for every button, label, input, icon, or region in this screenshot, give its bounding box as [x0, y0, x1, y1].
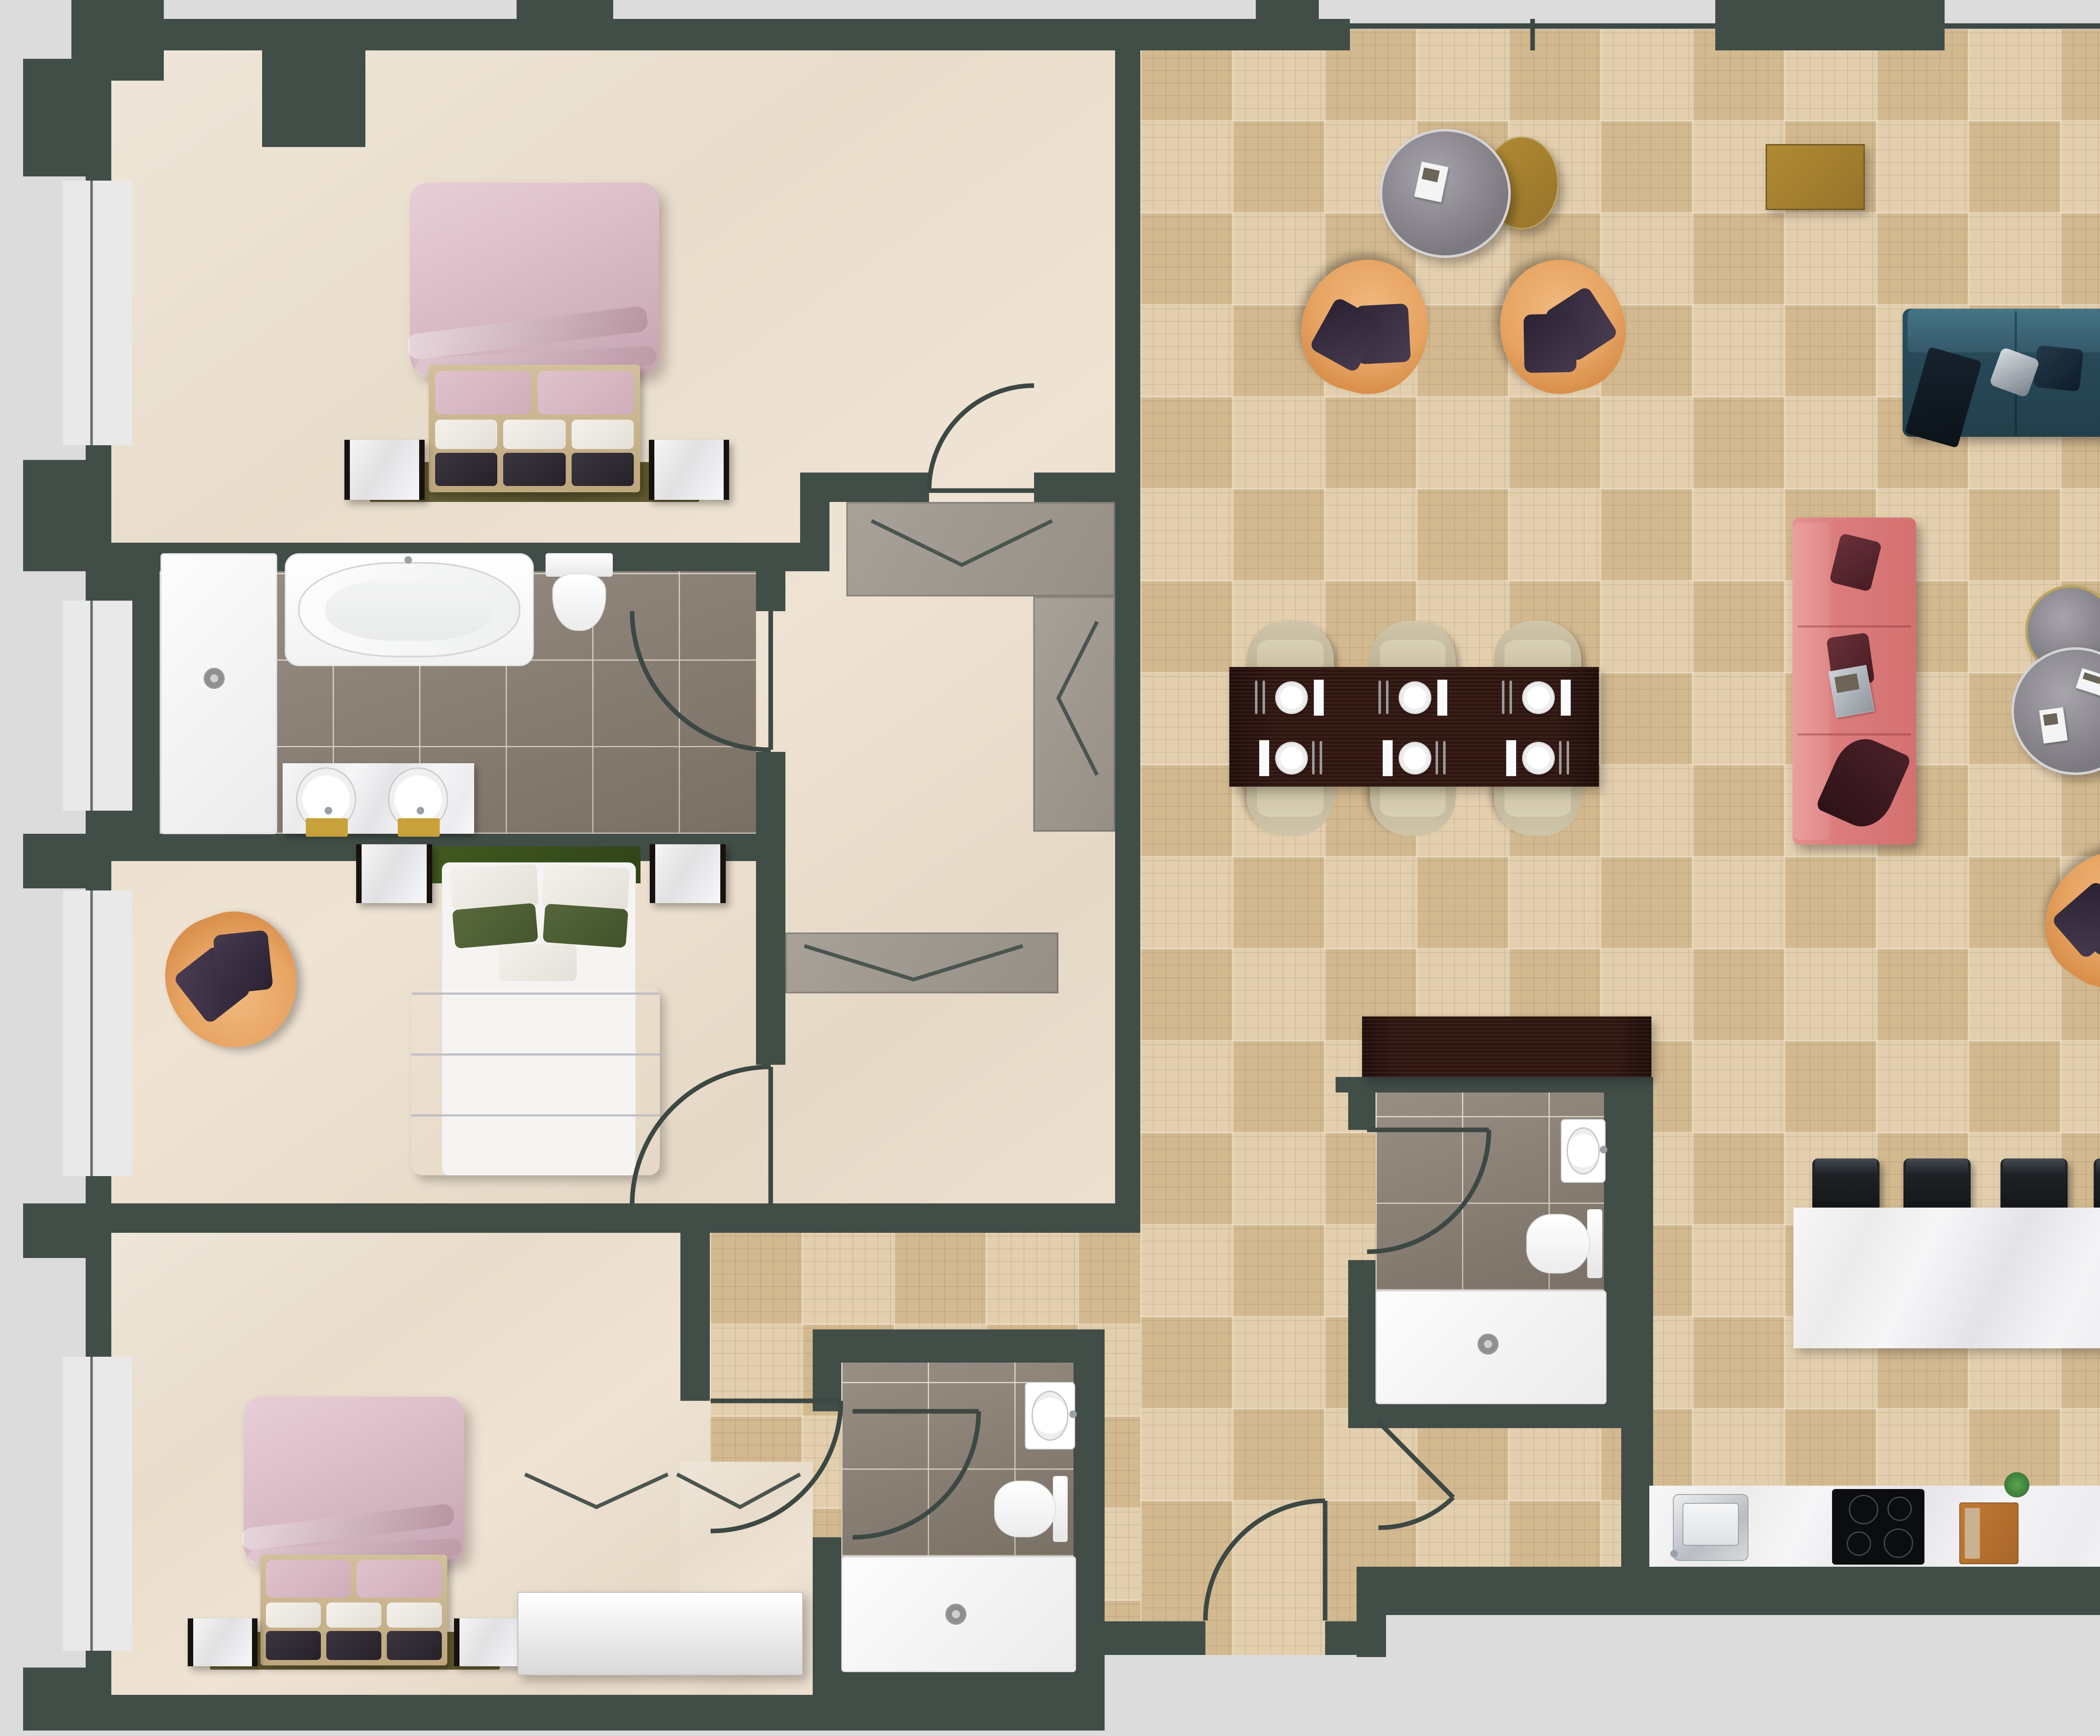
coral-sofa — [1793, 517, 1916, 845]
pillar-left-2 — [23, 460, 86, 571]
pillar-top-3 — [1256, 0, 1319, 50]
cutlery — [1312, 741, 1315, 775]
cutlery — [1443, 741, 1446, 775]
wall-showerA-south — [813, 1670, 1105, 1695]
wall-showerB-west-b — [1348, 1260, 1375, 1411]
wall-walkin-junction — [800, 473, 829, 571]
entry-outside-notch — [1105, 1655, 1357, 1736]
floor-plan — [0, 0, 2100, 1736]
window-left-1 — [63, 181, 132, 445]
wall-bed3-east — [680, 1233, 710, 1401]
wall-bed2-east — [756, 861, 785, 1065]
bedroom-1-bed — [399, 183, 670, 502]
cutlery — [1255, 680, 1257, 714]
nightstand — [454, 1618, 526, 1666]
toilet-main-bathroom — [546, 553, 613, 631]
window-left-2 — [63, 601, 132, 811]
green-pillow — [452, 903, 538, 949]
napkin — [1259, 740, 1269, 776]
wall-showerA-east — [1074, 1329, 1105, 1695]
shower-b-tray — [1375, 1290, 1606, 1404]
pillar-left-3 — [23, 834, 86, 888]
napkin — [1437, 680, 1447, 716]
wall-entry-left — [1105, 1621, 1205, 1655]
closet-unit-east — [1033, 596, 1115, 832]
cutting-board — [1959, 1502, 2019, 1564]
wall-showerB-west-a — [1348, 1093, 1375, 1130]
wall-bath-east-b — [756, 752, 785, 861]
shower-b-toilet — [1526, 1209, 1602, 1278]
wall-showerA-north — [813, 1329, 1105, 1363]
coffee-table-large-top — [1380, 129, 1511, 258]
pillar-top-2 — [517, 0, 613, 50]
cutlery — [1436, 741, 1438, 775]
kitchen-sink — [1673, 1494, 1748, 1561]
napkin — [1561, 680, 1571, 716]
bar-stool — [1903, 1158, 1971, 1215]
wall-top-a — [84, 19, 1350, 50]
pillar-left-5 — [23, 1668, 86, 1731]
nightstand — [188, 1618, 257, 1666]
wall-stub-bed1 — [262, 50, 365, 147]
place-setting-plate — [1522, 742, 1555, 775]
cutlery — [1502, 680, 1504, 714]
closet-unit-north — [846, 502, 1115, 596]
cutlery — [1378, 680, 1381, 714]
bedroom-3-wardrobe — [517, 1592, 803, 1676]
wall-walkin-north-b — [1034, 473, 1115, 502]
green-pillow — [543, 903, 628, 948]
place-setting-plate — [1275, 742, 1308, 775]
place-setting-plate — [1399, 742, 1431, 775]
nightstand — [650, 844, 726, 903]
cutlery — [1559, 741, 1562, 775]
cutlery — [1509, 680, 1512, 714]
herb-pot — [2004, 1472, 2029, 1497]
place-setting-plate — [1275, 681, 1308, 714]
shower-a-toilet — [994, 1476, 1068, 1542]
cutlery — [1263, 680, 1265, 714]
shower-a-sink — [1025, 1382, 1075, 1450]
window-console — [1766, 144, 1865, 210]
wall-bed2-south — [111, 1203, 1140, 1233]
place-setting-plate — [1522, 681, 1555, 714]
wall-showerB-south — [1348, 1402, 1653, 1428]
wall-entry-right — [1325, 1621, 1357, 1655]
closet-unit-south — [785, 932, 1058, 993]
bedroom-2-duvet — [411, 986, 660, 1175]
teal-sofa — [1903, 309, 2100, 437]
shower-b-sink — [1561, 1119, 1606, 1183]
bar-stool — [2094, 1158, 2100, 1215]
cutlery — [1386, 680, 1389, 714]
small-pillow — [499, 944, 577, 981]
place-setting-plate — [1399, 681, 1431, 714]
bathroom-shower-tray — [160, 553, 277, 834]
wall-bottom-right — [1357, 1567, 2100, 1615]
nightstand — [344, 440, 425, 500]
nightstand — [649, 440, 729, 500]
wall-showerB-east — [1604, 1077, 1653, 1411]
nightstand — [356, 844, 432, 903]
pillow — [542, 864, 630, 911]
cooktop — [1832, 1489, 1924, 1565]
wall-living-west — [1115, 50, 1140, 1233]
bathtub — [285, 553, 534, 666]
bedroom-3-bed — [234, 1397, 474, 1674]
pillar-left-4 — [23, 1203, 86, 1258]
napkin — [1506, 740, 1516, 776]
pillar-left-1 — [23, 59, 86, 176]
napkin — [1314, 680, 1324, 716]
wall-bottom-left — [84, 1695, 1105, 1731]
bar-stool — [2000, 1158, 2068, 1215]
shower-a-tray — [841, 1556, 1076, 1672]
wall-hall-spine — [1621, 1428, 1653, 1567]
napkin — [1383, 740, 1393, 776]
wall-bath-east-a — [756, 571, 785, 611]
window-left-3 — [63, 890, 132, 1176]
wall-top-b — [1715, 0, 1945, 50]
dark-console — [1362, 1016, 1651, 1077]
double-vanity — [283, 763, 474, 834]
kitchen-island — [1793, 1208, 2100, 1348]
window-left-4 — [63, 1357, 132, 1651]
bar-stool — [1812, 1158, 1879, 1215]
cutlery — [1567, 741, 1569, 775]
cutlery — [1320, 741, 1322, 775]
